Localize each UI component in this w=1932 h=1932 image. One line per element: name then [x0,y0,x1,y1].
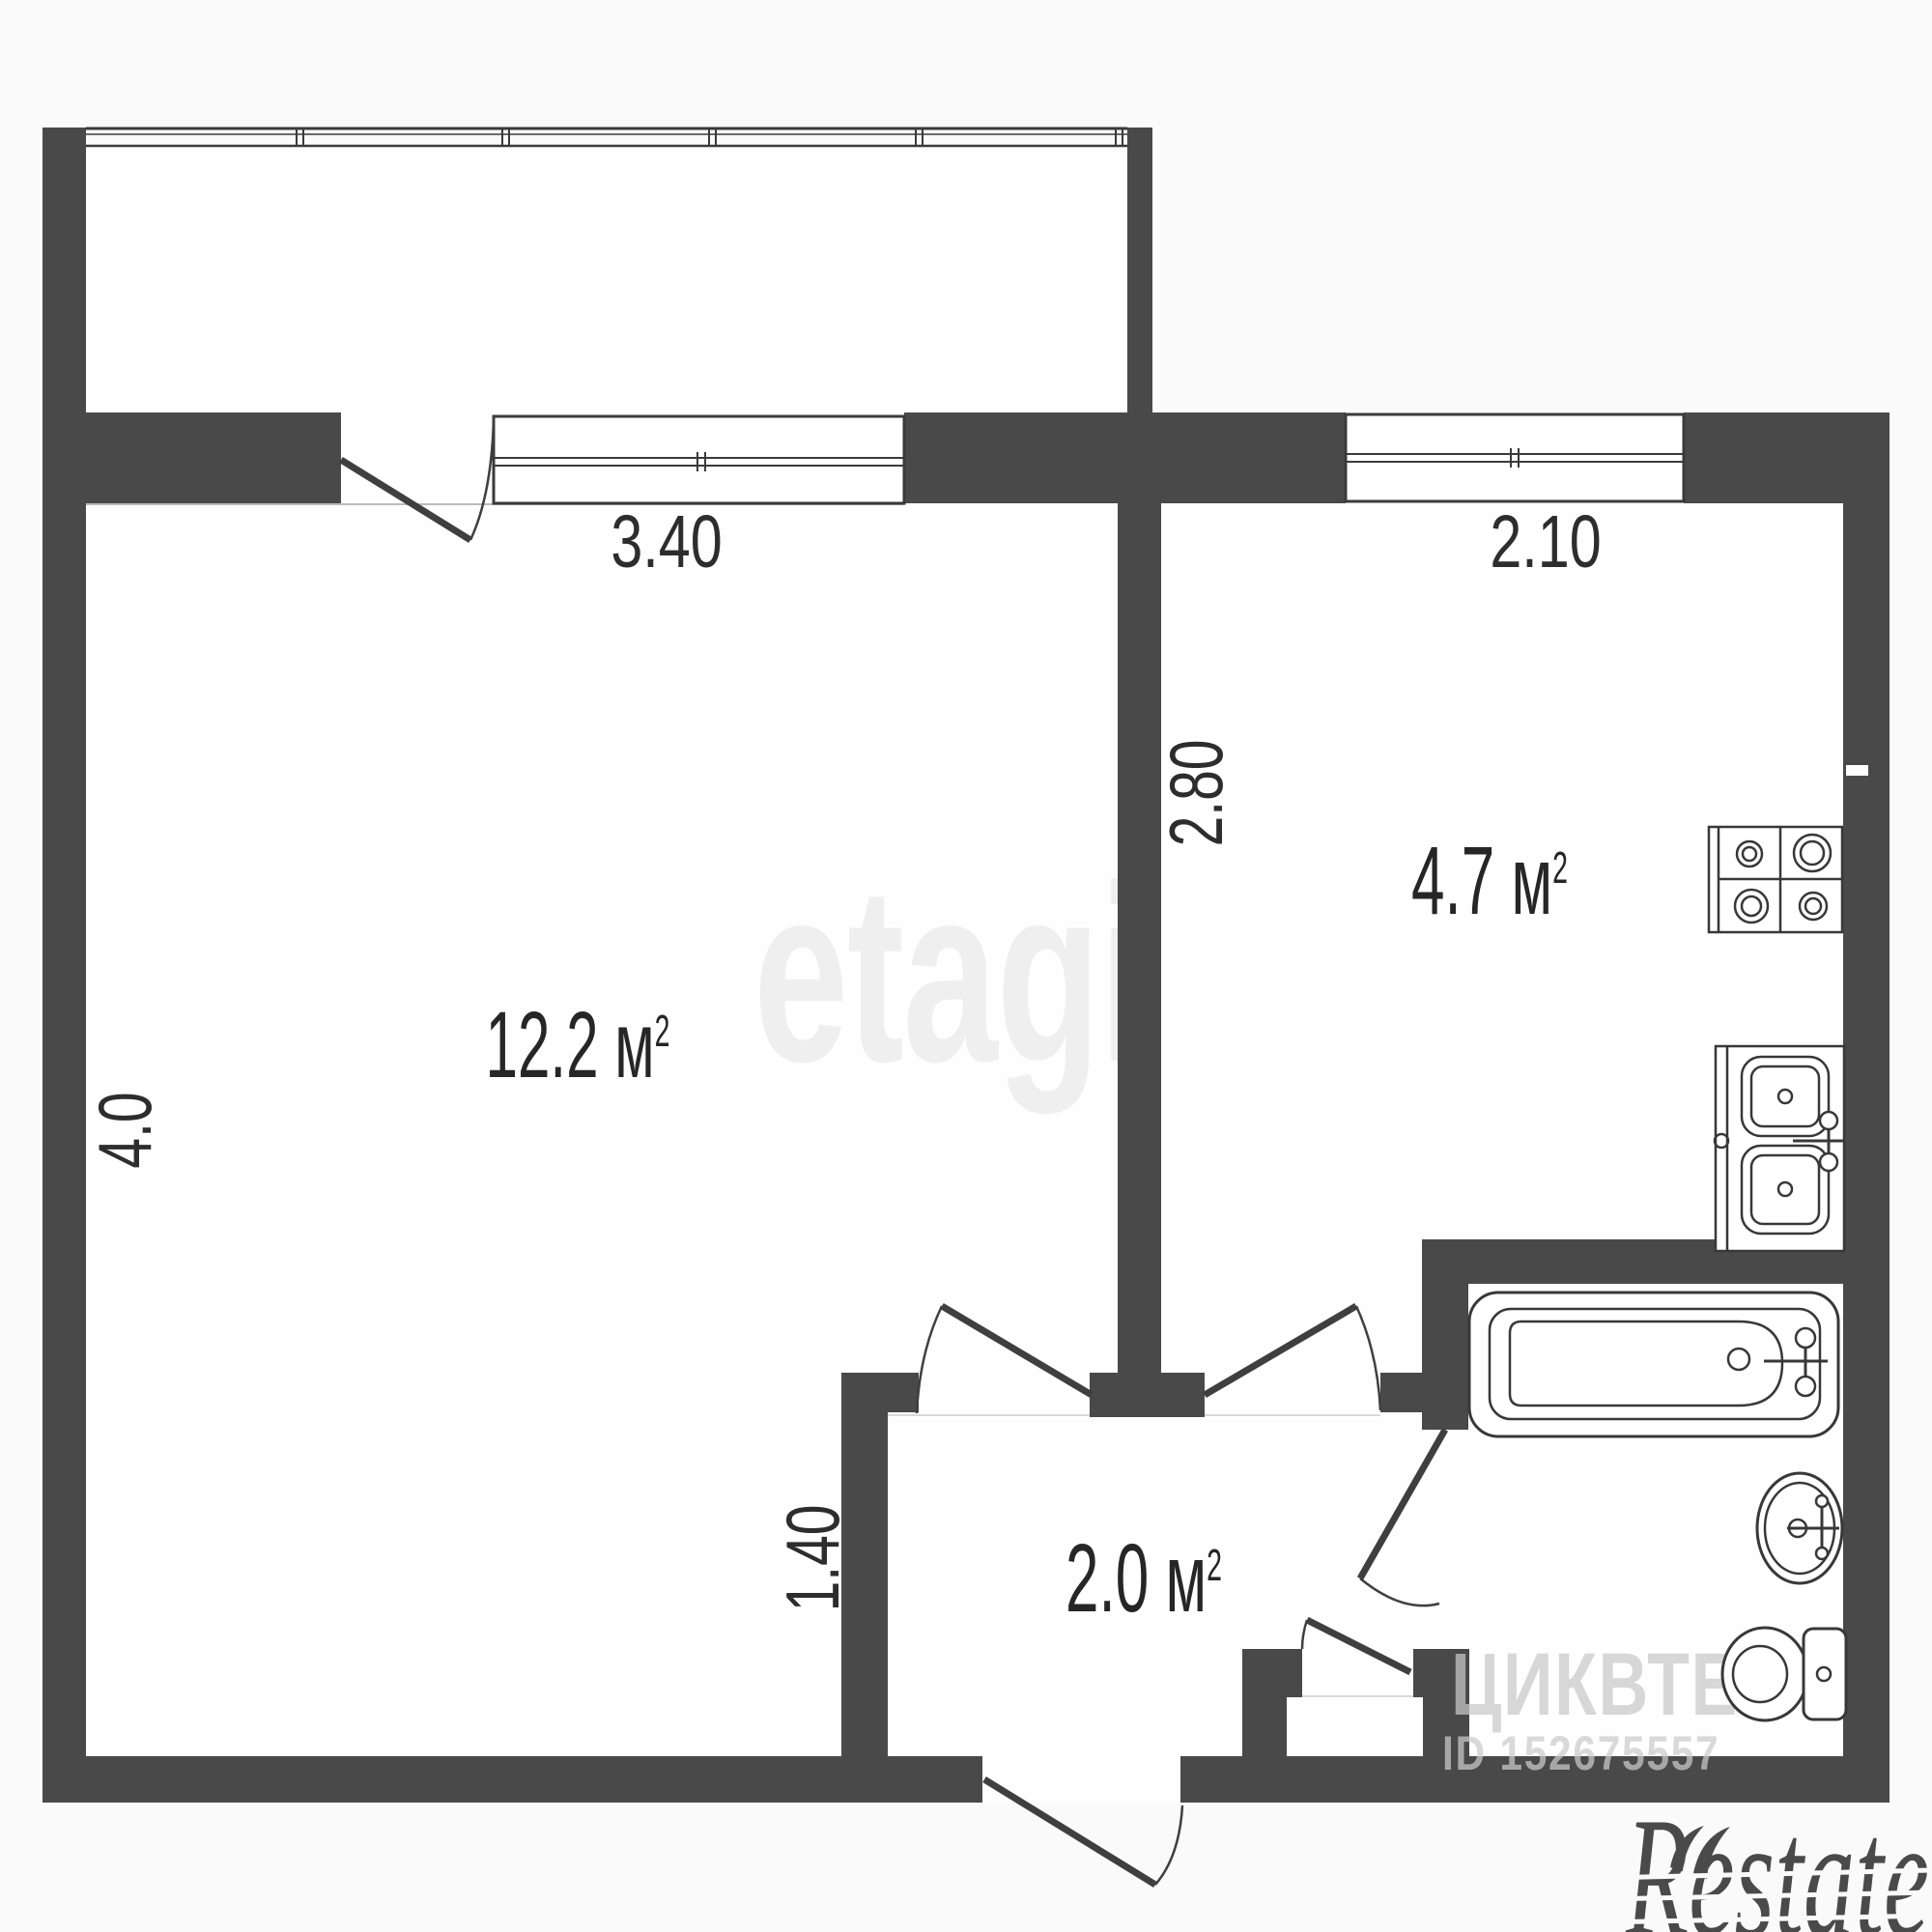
svg-text:12.2 м2: 12.2 м2 [486,993,670,1097]
svg-text:4.0: 4.0 [83,1092,167,1168]
svg-text:2.0 м2: 2.0 м2 [1065,1524,1222,1633]
svg-text:2.10: 2.10 [1490,500,1601,583]
svg-text:etagi: etagi [753,835,1146,1115]
svg-text:3.40: 3.40 [611,500,722,583]
svg-text:ЦИКВТЕ: ЦИКВТЕ [1451,1634,1739,1734]
svg-text:2.80: 2.80 [1154,740,1238,847]
svg-text:ID 152675557: ID 152675557 [1442,1726,1719,1780]
svg-text:1.40: 1.40 [771,1505,855,1612]
svg-text:4.7 м2: 4.7 м2 [1411,827,1568,935]
svg-text:Restate: Restate [1625,1781,1929,1932]
